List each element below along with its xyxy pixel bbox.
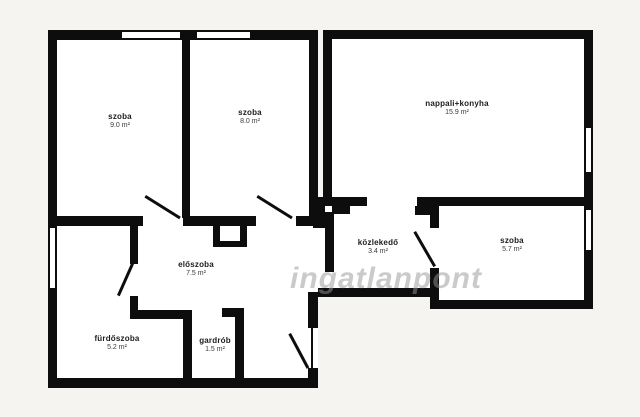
window-bedroom2 bbox=[197, 30, 250, 40]
room-area: 8.0 m² bbox=[238, 118, 262, 125]
room-label-wardrobe: gardrób 1.5 m² bbox=[199, 336, 231, 353]
room-name: szoba bbox=[108, 112, 132, 121]
room-label-bedroom1: szoba 9.0 m² bbox=[108, 112, 132, 129]
room-area: 5.7 m² bbox=[500, 246, 524, 253]
wall-living-bottom-seg2 bbox=[417, 197, 593, 206]
room-fill-right-bedroom bbox=[430, 197, 593, 309]
room-name: előszoba bbox=[178, 260, 214, 269]
wall-bathroom-vertical-seg1 bbox=[130, 226, 138, 264]
wall-bottom-left-block-right-seg2 bbox=[308, 368, 318, 380]
wall-wardrobe-left bbox=[183, 310, 192, 378]
room-name: szoba bbox=[500, 236, 524, 245]
room-label-hallway: közlekedő 3.4 m² bbox=[358, 238, 398, 255]
wall-top-left-block-bottom-seg1 bbox=[48, 216, 143, 226]
entry-door-line bbox=[311, 328, 313, 368]
window-right-bedroom bbox=[584, 210, 593, 250]
room-name: közlekedő bbox=[358, 238, 398, 247]
wall-hallway-step bbox=[313, 197, 325, 228]
wall-living-bottom-seg1 bbox=[323, 197, 367, 206]
wall-hallway-bottom bbox=[318, 288, 439, 297]
wall-wardrobe-top-stub bbox=[222, 308, 244, 317]
wall-living-left bbox=[323, 30, 332, 206]
room-area: 7.5 m² bbox=[178, 270, 214, 277]
wall-bottom-left-block-bottom bbox=[48, 378, 318, 388]
room-label-right-bedroom: szoba 5.7 m² bbox=[500, 236, 524, 253]
room-area: 5.2 m² bbox=[94, 344, 139, 351]
wall-living-right bbox=[584, 30, 593, 206]
room-label-entry-hall: előszoba 7.5 m² bbox=[178, 260, 214, 277]
room-area: 15.9 m² bbox=[425, 109, 488, 116]
room-name: gardrób bbox=[199, 336, 231, 345]
room-fill-passage bbox=[318, 228, 325, 288]
room-area: 1.5 m² bbox=[199, 346, 231, 353]
room-name: fürdőszoba bbox=[94, 334, 139, 343]
wall-living-top bbox=[323, 30, 593, 39]
room-name: nappali+konyha bbox=[425, 99, 488, 108]
room-name: szoba bbox=[238, 108, 262, 117]
wall-wardrobe-right bbox=[235, 308, 244, 378]
wall-bedroom-divider bbox=[182, 38, 190, 218]
room-fill-living-block bbox=[323, 30, 593, 206]
room-label-living-kitchen: nappali+konyha 15.9 m² bbox=[425, 99, 488, 116]
wall-living-stub bbox=[332, 206, 350, 214]
wall-hallway-left bbox=[325, 212, 334, 272]
wall-bottom-left-block-right-seg1 bbox=[308, 292, 318, 328]
wall-shaft-bottom bbox=[213, 241, 247, 247]
room-area: 3.4 m² bbox=[358, 248, 398, 255]
wall-right-bedroom-left-seg1 bbox=[430, 206, 439, 228]
room-area: 9.0 m² bbox=[108, 122, 132, 129]
window-bathroom-wall bbox=[48, 228, 57, 288]
wall-right-bedroom-bottom bbox=[430, 300, 593, 309]
window-bedroom1 bbox=[122, 30, 180, 40]
floor-plan: szoba 9.0 m² szoba 8.0 m² nappali+konyha… bbox=[0, 0, 640, 417]
window-living bbox=[584, 128, 593, 172]
wall-top-left-block-left bbox=[48, 30, 57, 226]
room-label-bedroom2: szoba 8.0 m² bbox=[238, 108, 262, 125]
wall-bathroom-vertical-seg2 bbox=[130, 296, 138, 310]
room-label-bathroom: fürdőszoba 5.2 m² bbox=[94, 334, 139, 351]
